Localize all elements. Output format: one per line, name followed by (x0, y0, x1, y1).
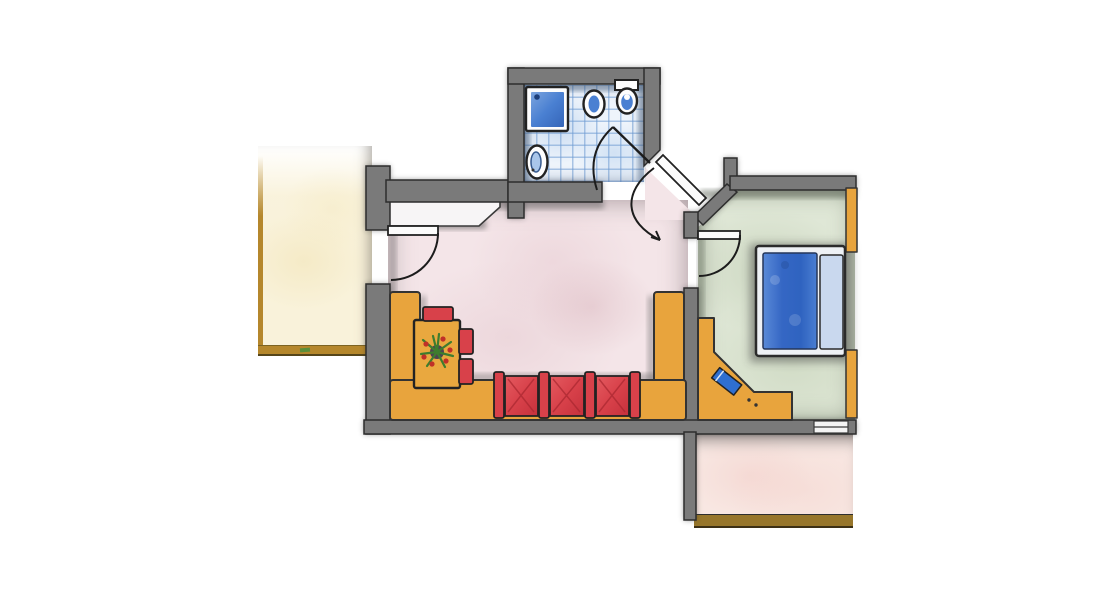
wall-left-lower (366, 284, 390, 434)
wall-bedroom-left-upper (684, 212, 698, 238)
bidet (527, 146, 548, 179)
chair-right-1 (459, 329, 473, 354)
bathroom-fixtures (526, 80, 638, 179)
floor-plan-canvas (0, 0, 1100, 600)
wardrobe-niche (388, 201, 500, 226)
double-bed (756, 246, 845, 356)
bed-blanket (763, 253, 817, 349)
wall-bedroom-top (730, 176, 856, 190)
terrace-plant-fleck (300, 348, 310, 353)
wall-top-living (386, 180, 512, 202)
bed-pillow (820, 255, 843, 349)
toilet (615, 80, 638, 114)
washbasin (584, 91, 605, 118)
bedroom-door (698, 231, 740, 276)
bedroom-terrace-window (814, 421, 848, 433)
bedroom-furniture (698, 188, 857, 420)
wall-bottom (364, 420, 856, 434)
wall-terrace-lower (684, 432, 696, 520)
shower-tray (526, 87, 568, 131)
living-furniture (390, 292, 686, 420)
wall-bath-bottom (508, 182, 602, 202)
chair-top (423, 307, 453, 321)
wardrobe-top-right (846, 188, 857, 252)
wardrobe-bottom-right (846, 350, 857, 418)
sofa (494, 372, 640, 418)
plan-overlay (0, 0, 1100, 600)
chair-right-2 (459, 359, 473, 384)
wall-bath-right (644, 68, 660, 166)
